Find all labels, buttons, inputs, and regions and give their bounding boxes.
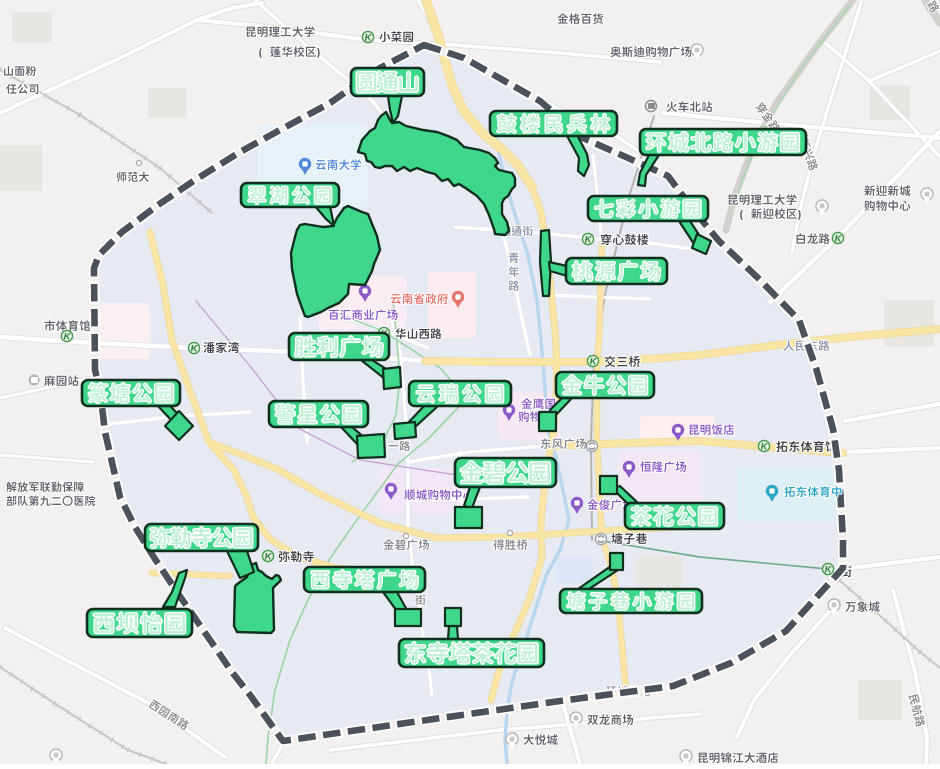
svg-text:K: K xyxy=(191,343,199,354)
svg-text:K: K xyxy=(825,564,833,575)
svg-text:K: K xyxy=(590,356,598,367)
svg-text:K: K xyxy=(265,551,273,562)
svg-text:K: K xyxy=(585,234,593,245)
svg-text:K: K xyxy=(761,441,769,452)
svg-text:K: K xyxy=(365,32,373,43)
svg-text:K: K xyxy=(835,233,843,244)
svg-text:K: K xyxy=(64,331,72,342)
